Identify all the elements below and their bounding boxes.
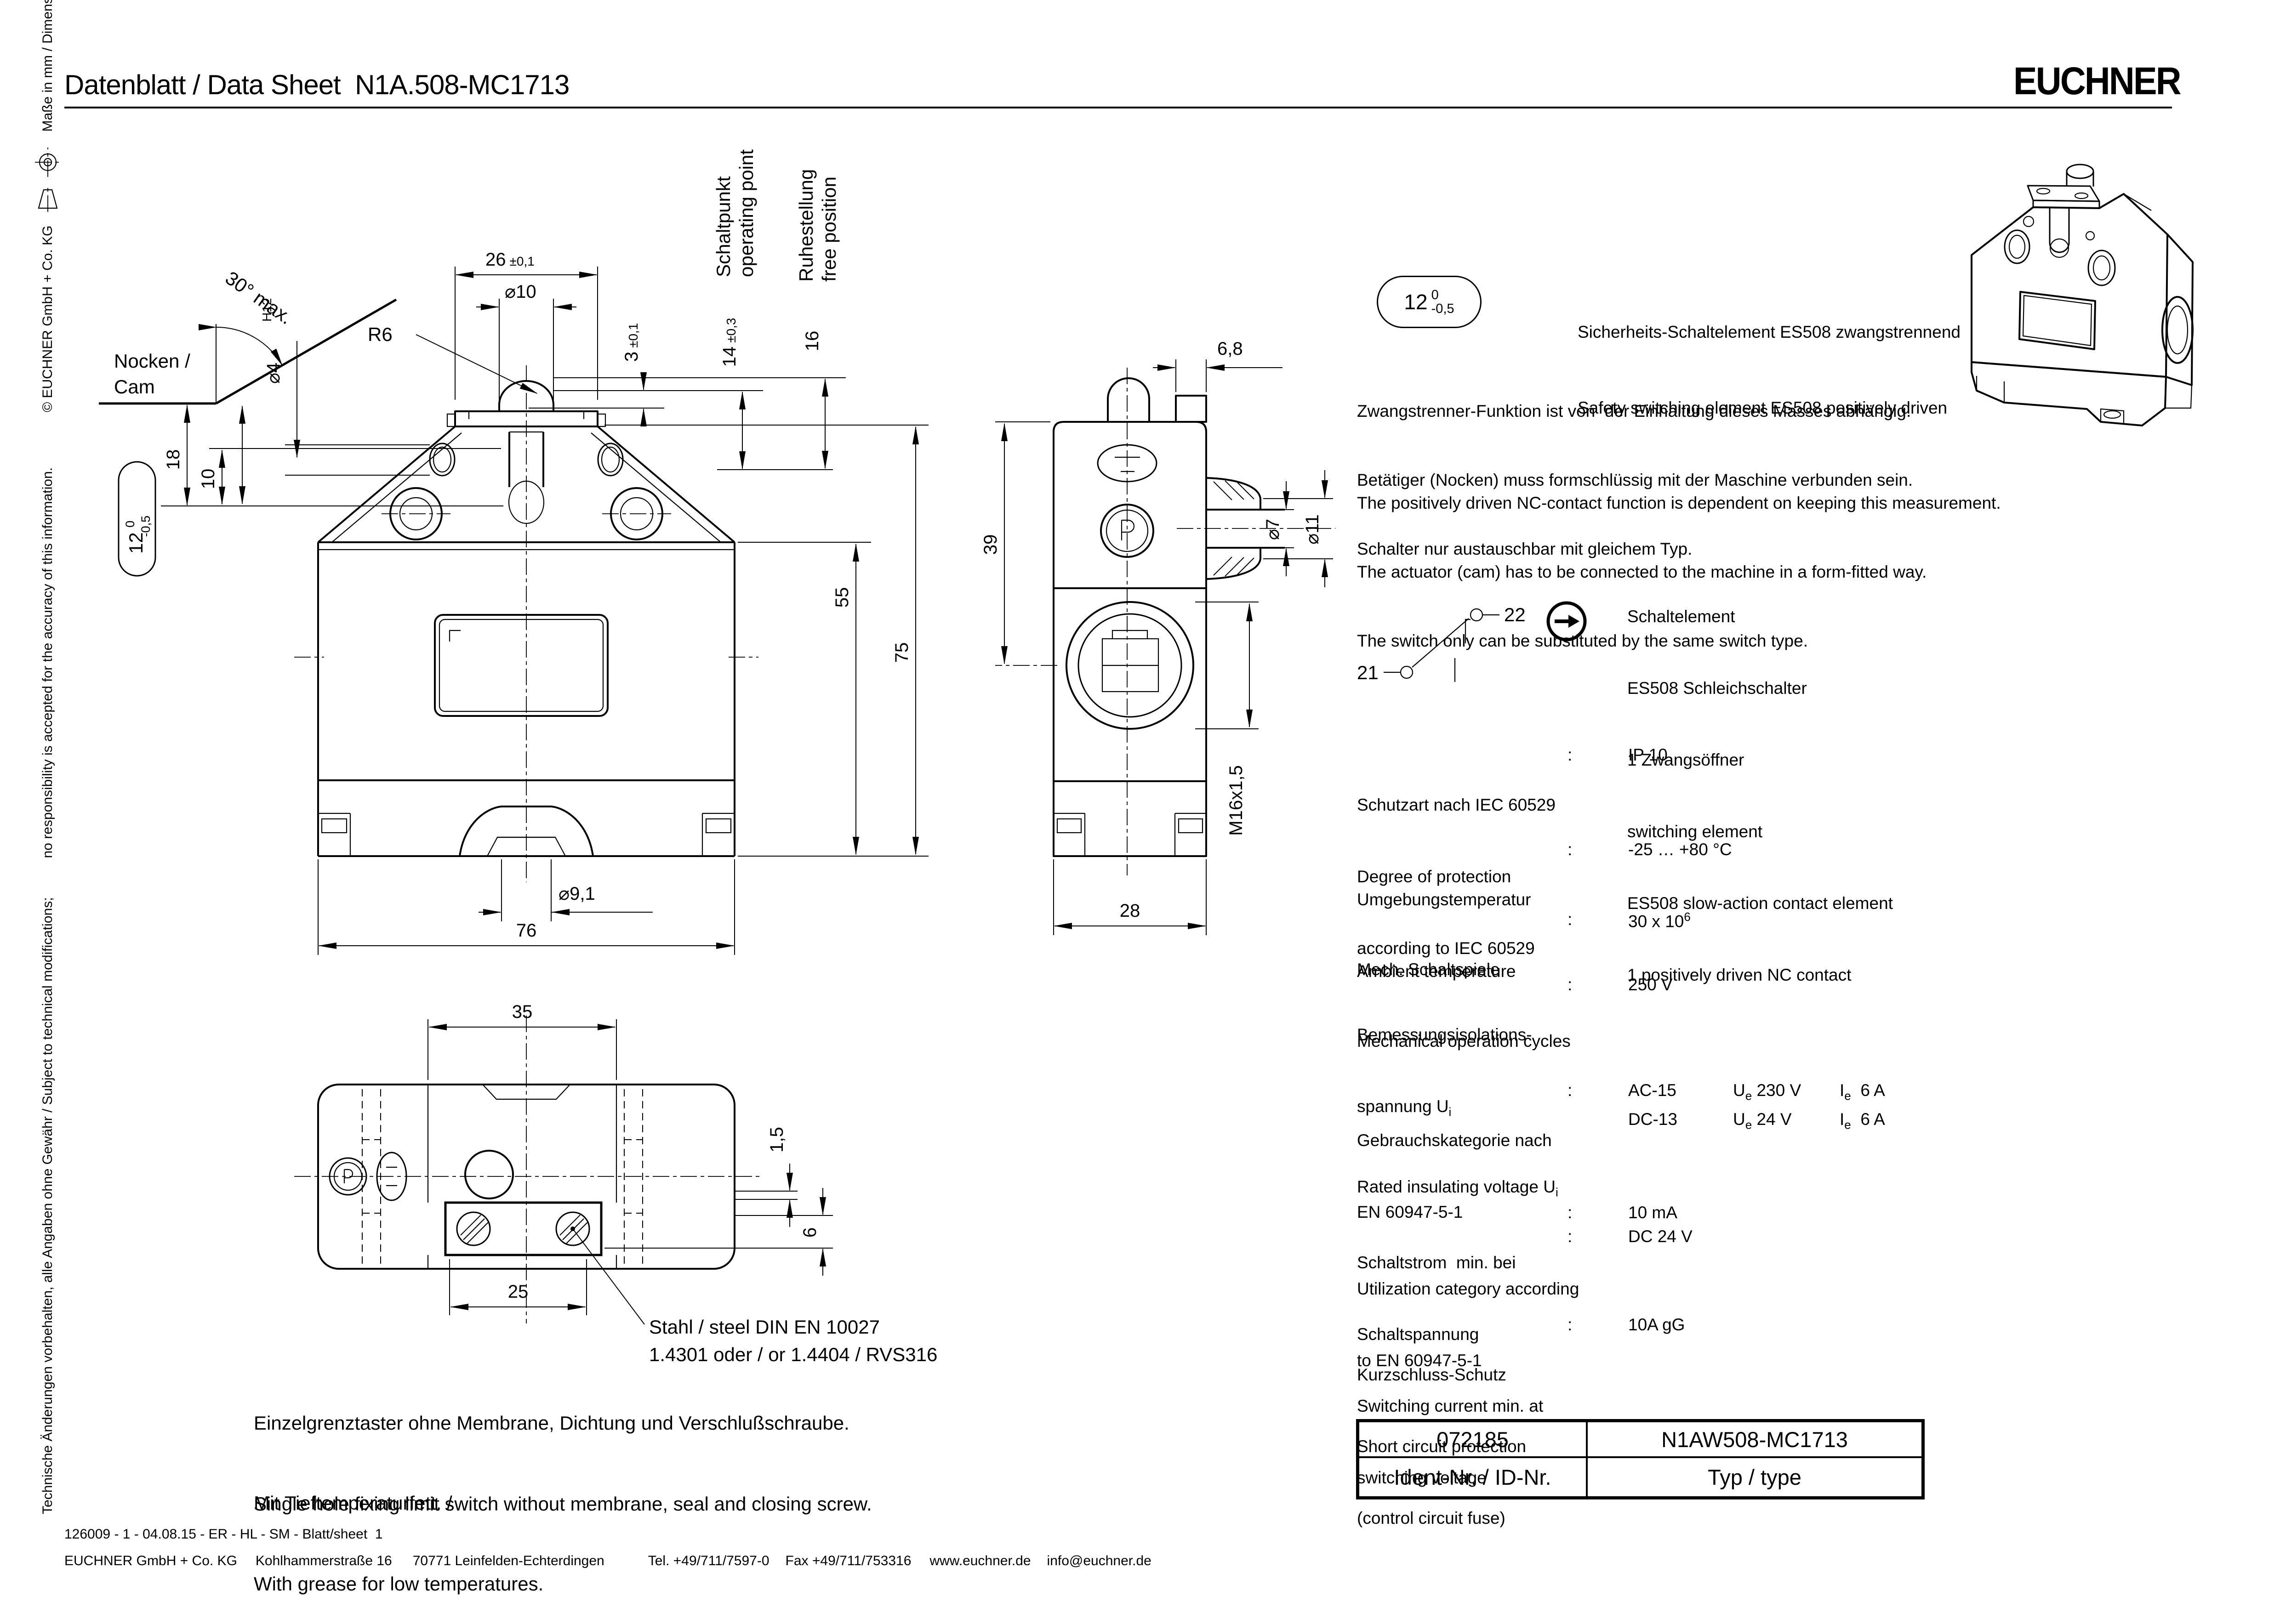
footer-city: 70771 Leinfelden-Echterdingen xyxy=(413,1553,604,1569)
footer-company: EUCHNER GmbH + Co. KG xyxy=(64,1553,237,1569)
cam-label-de: Nocken / xyxy=(114,350,190,372)
first-angle-projection-circle-icon xyxy=(33,146,63,179)
datasheet-page: { "header": { "title": "Datenblatt / Dat… xyxy=(0,0,2280,1612)
id-type-table: 072185 N1AW508-MC1713 Ident-Nr. / ID-Nr.… xyxy=(1356,1419,1925,1499)
dim-25: 25 xyxy=(508,1282,529,1302)
spec-colon: : xyxy=(1567,1081,1572,1100)
side-view-body xyxy=(1054,368,1335,875)
label-operating-point: operating point xyxy=(735,149,757,277)
footer-company-line: EUCHNER GmbH + Co. KG Kohlhammerstraße 1… xyxy=(64,1553,1151,1569)
dim-75: 75 xyxy=(892,642,912,663)
spec-value-voltage: DC 24 V xyxy=(1628,1227,1693,1246)
dim-d10: ⌀10 xyxy=(505,282,536,302)
spec-colon: : xyxy=(1567,745,1572,765)
spec-colon: : xyxy=(1567,1315,1572,1334)
footer-street: Kohlhammerstraße 16 xyxy=(256,1553,392,1569)
dim-d4: ⌀4 xyxy=(263,363,284,384)
dim-d4-tol: H12 xyxy=(260,298,274,322)
id-number-label: Ident-Nr. / ID-Nr. xyxy=(1358,1457,1587,1497)
tolerance-12-badge-left-text: 12 0 -0,5 xyxy=(123,516,153,554)
utilization-ac-current: Ie 6 A xyxy=(1840,1081,1885,1103)
safety-element-heading-de: Sicherheits-Schaltelement ES508 zwangstr… xyxy=(1578,319,1961,345)
sidebar-dimensions-note: Maße in mm / Dimensions in mm xyxy=(40,0,56,132)
spec-value: 30 x 106 xyxy=(1628,910,1691,931)
cam-diagram: 30° max. Nocken / Cam 18 10 ⌀4 H12 12 0 … xyxy=(99,267,503,576)
spec-value: 250 V xyxy=(1628,975,1673,994)
note-en-line1: The positively driven NC-contact functio… xyxy=(1357,492,2001,515)
spec-colon: : xyxy=(1567,840,1572,859)
isometric-view xyxy=(1949,133,2280,437)
footer-tel: Tel. +49/711/7597-0 xyxy=(648,1553,769,1569)
tolerance-12-badge: 12 0-0,5 xyxy=(1377,276,1482,328)
label-ruhestellung: Ruhestellung xyxy=(795,169,817,282)
spec-colon: : xyxy=(1567,1203,1572,1222)
bottom-view-dimensions: 35 25 1,5 6 Stahl / steel DIN EN 10027 1… xyxy=(428,1002,937,1365)
actuation-arrow-icon xyxy=(1548,603,1585,640)
dim-18: 18 xyxy=(163,449,183,470)
terminal-22-label: 22 xyxy=(1504,604,1526,625)
dim-3: 3±0,1 xyxy=(621,323,642,362)
description-en-line2: With grease for low temperatures. xyxy=(254,1571,872,1597)
side-view-drawing: 6,8 39 ⌀7 ⌀11 M16x1,5 28 xyxy=(965,276,1379,965)
dim-68: 6,8 xyxy=(1217,339,1243,359)
first-angle-projection-cone-icon xyxy=(33,185,63,212)
dim-10: 10 xyxy=(198,469,218,489)
tolerance-value: 12 xyxy=(1404,290,1427,314)
sidebar-vertical-note: Technische Änderungen vorbehalten, alle … xyxy=(33,136,63,1514)
dim-d91: ⌀9,1 xyxy=(559,884,595,904)
contact-desc-line1: Schaltelement xyxy=(1627,605,1893,629)
footer-web: www.euchner.de xyxy=(929,1553,1031,1569)
description-de-line1: Einzelgrenztaster ohne Membrane, Dichtun… xyxy=(254,1410,849,1437)
contact-desc-line2: ES508 Schleichschalter xyxy=(1627,676,1893,700)
dim-76: 76 xyxy=(516,920,537,941)
label-schaltpunkt: Schaltpunkt xyxy=(712,176,734,277)
utilization-dc-voltage: Ue 24 V xyxy=(1733,1110,1792,1132)
spec-value: IP 10 xyxy=(1628,745,1668,765)
dim-35: 35 xyxy=(512,1002,533,1022)
header-rule xyxy=(64,107,2172,108)
euchner-logo: EUCHNER xyxy=(2013,59,2180,103)
bottom-view-body xyxy=(294,1016,763,1323)
utilization-dc-category: DC-13 xyxy=(1628,1110,1677,1129)
cam-angle-label: 30° max. xyxy=(222,267,296,329)
front-view-drawing: 30° max. Nocken / Cam 18 10 ⌀4 H12 12 0 … xyxy=(64,138,965,965)
sidebar-modifications-note: Technische Änderungen vorbehalten, alle … xyxy=(40,897,56,1514)
description-en-line1: Single hole fixing limit switch without … xyxy=(254,1491,872,1517)
cam-label-en: Cam xyxy=(114,376,155,397)
spec-value: 10A gG xyxy=(1628,1315,1685,1334)
screw-left xyxy=(457,1212,490,1245)
dim-m16: M16x1,5 xyxy=(1226,765,1246,835)
dim-r6: R6 xyxy=(368,324,393,345)
dim-28: 28 xyxy=(1120,901,1140,921)
dim-14: 14±0,3 xyxy=(719,318,740,367)
dim-55: 55 xyxy=(832,587,852,608)
nc-contact-symbol: 21 22 xyxy=(1351,584,1609,703)
utilization-dc-current: Ie 6 A xyxy=(1840,1110,1885,1132)
footer-document-number: 126009 - 1 - 04.08.15 - ER - HL - SM - B… xyxy=(64,1527,383,1542)
utilization-ac-voltage: Ue 230 V xyxy=(1733,1081,1801,1103)
front-view-dimensions: 26±0,1 ⌀10 R6 3±0,1 14±0,3 16 Schaltpunk… xyxy=(318,149,929,955)
utilization-ac-category: AC-15 xyxy=(1628,1081,1676,1100)
dim-26: 26±0,1 xyxy=(485,250,535,270)
spec-colon: : xyxy=(1567,975,1572,994)
dim-39: 39 xyxy=(980,534,1001,555)
material-note-line1: Stahl / steel DIN EN 10027 xyxy=(649,1316,880,1338)
front-view-body xyxy=(294,365,758,882)
side-view-dimensions: 6,8 39 ⌀7 ⌀11 M16x1,5 28 xyxy=(980,339,1333,935)
spec-colon-2: : xyxy=(1567,1227,1572,1246)
footer-fax: Fax +49/711/753316 xyxy=(786,1553,912,1569)
id-number-value: 072185 xyxy=(1358,1421,1587,1457)
dim-15: 1,5 xyxy=(767,1127,787,1153)
type-label: Typ / type xyxy=(1587,1457,1922,1497)
dim-d11: ⌀11 xyxy=(1302,514,1322,545)
terminal-21-label: 21 xyxy=(1357,662,1379,683)
dim-6: 6 xyxy=(800,1227,820,1238)
sidebar-responsibility-note: no responsibility is accepted for the ac… xyxy=(40,467,56,858)
label-free-position: free position xyxy=(818,176,840,282)
spec-value-current: 10 mA xyxy=(1628,1203,1677,1222)
tolerance-top: 0 xyxy=(1431,288,1454,302)
bottom-view-drawing: 35 25 1,5 6 Stahl / steel DIN EN 10027 1… xyxy=(276,988,988,1402)
page-title: Datenblatt / Data Sheet N1A.508-MC1713 xyxy=(64,69,569,101)
footer-email: info@euchner.de xyxy=(1047,1553,1151,1569)
note-de-line1: Zwangstrenner-Funktion ist von der Einha… xyxy=(1357,400,1913,423)
isometric-body xyxy=(1972,165,2193,426)
type-value: N1AW508-MC1713 xyxy=(1587,1421,1922,1457)
dim-d7: ⌀7 xyxy=(1263,519,1283,540)
dim-16: 16 xyxy=(802,331,822,352)
spec-value: -25 … +80 °C xyxy=(1628,840,1732,859)
sidebar-copyright: © EUCHNER GmbH + Co. KG xyxy=(40,226,56,412)
tolerance-bottom: -0,5 xyxy=(1431,302,1454,316)
spec-colon: : xyxy=(1567,910,1572,929)
